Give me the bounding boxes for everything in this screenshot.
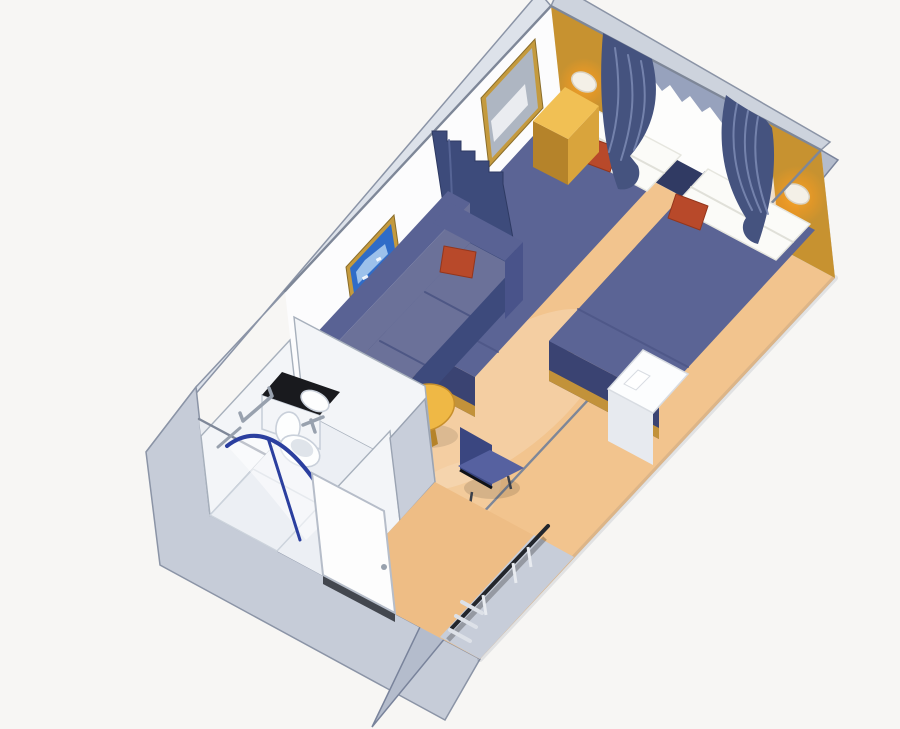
door-handle	[381, 564, 387, 570]
stateroom-floorplan-image	[0, 0, 900, 729]
sofa-pillow-right	[440, 246, 476, 278]
stateroom-illustration	[0, 0, 900, 729]
